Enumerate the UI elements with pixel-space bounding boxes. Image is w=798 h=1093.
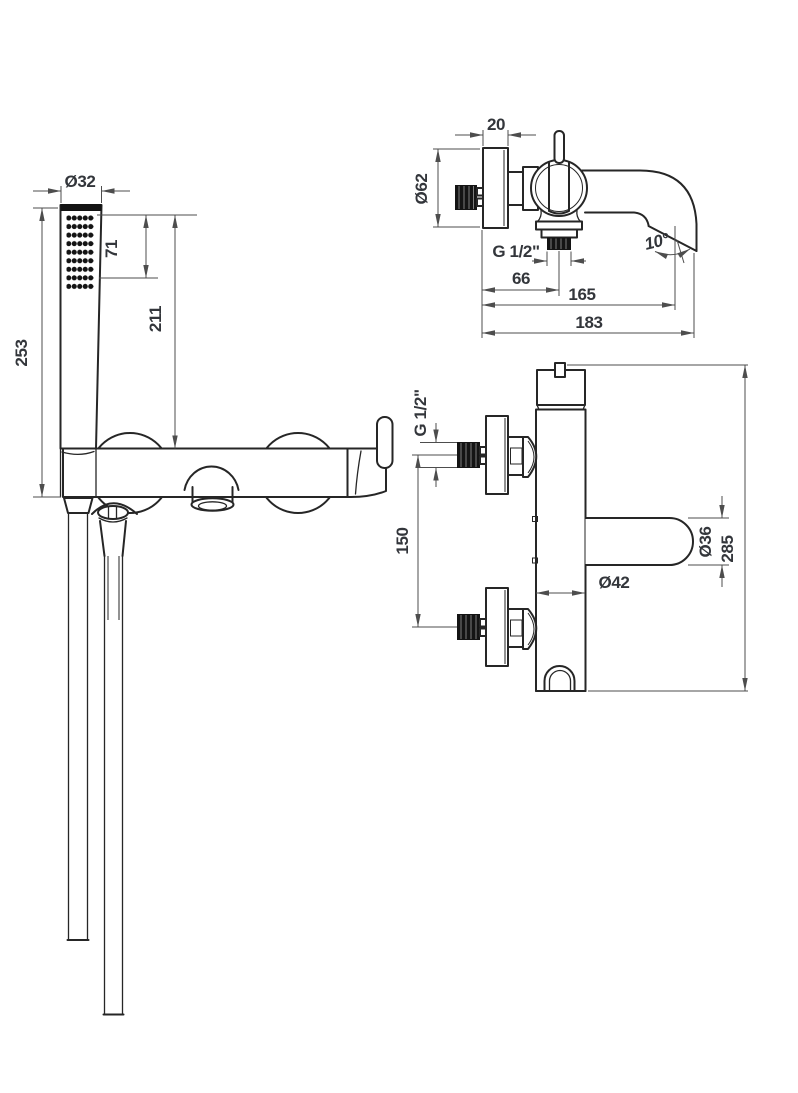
union-thread-knob-upper — [457, 442, 480, 468]
dim-head-diameter: Ø32 — [33, 172, 130, 203]
svg-text:G 1/2": G 1/2" — [492, 242, 539, 261]
spout-outlet-rim — [192, 498, 234, 510]
mixer-hose — [105, 556, 123, 1014]
outlet-nut-upper — [536, 222, 582, 230]
dim-plate-depth: 20 — [455, 115, 536, 146]
svg-text:71: 71 — [102, 240, 121, 258]
view-hand-shower-front: Ø32 71 211 253 — [12, 172, 393, 1015]
svg-text:253: 253 — [12, 339, 31, 366]
dim-head-to-body: 211 — [146, 215, 175, 449]
union-tab-top — [477, 188, 483, 196]
svg-text:20: 20 — [487, 115, 505, 134]
svg-text:165: 165 — [568, 285, 595, 304]
handle-skirt-curve — [356, 451, 362, 494]
union-tab-bottom — [477, 199, 483, 207]
svg-text:10°: 10° — [642, 229, 671, 254]
mixer-body-front — [63, 449, 348, 498]
lever-stick-side — [555, 131, 565, 163]
technical-drawing-page: Ø32 71 211 253 — [0, 0, 798, 1093]
dim-connection-spacing: 150 — [393, 455, 457, 627]
lever-handle-front — [377, 417, 393, 468]
svg-text:Ø62: Ø62 — [412, 174, 431, 205]
hand-shower-cap — [61, 204, 102, 211]
svg-text:G 1/2": G 1/2" — [411, 389, 430, 436]
svg-text:183: 183 — [575, 313, 602, 332]
dim-spray-length: 71 — [97, 215, 197, 278]
spout-outer-curve — [582, 171, 697, 252]
spray-face-dots — [67, 215, 95, 292]
svg-text:Ø42: Ø42 — [599, 573, 630, 592]
drawing-canvas: Ø32 71 211 253 — [0, 0, 798, 1093]
hose-union-nut — [98, 506, 128, 519]
union-thread-knob-lower — [457, 614, 480, 640]
spout-back-view — [586, 518, 694, 565]
mixer-hose-inner-lines — [108, 556, 119, 620]
svg-text:150: 150 — [393, 527, 412, 554]
svg-text:Ø32: Ø32 — [65, 172, 96, 191]
view-mixer-back: G 1/2" 150 Ø36 Ø42 285 — [393, 363, 748, 691]
wall-union-lower — [457, 588, 536, 666]
dim-outlet-thread: G 1/2" — [492, 242, 586, 266]
svg-text:Ø36: Ø36 — [696, 527, 715, 558]
valve-body-side — [531, 160, 587, 216]
spout-inner-curve — [585, 213, 649, 226]
shower-hose — [69, 513, 88, 940]
union-body-side — [508, 172, 523, 205]
outlet-nut-lower — [542, 230, 578, 238]
hose-cone — [100, 521, 126, 556]
shower-hose-nut — [64, 498, 93, 513]
mixer-column-back — [536, 410, 586, 692]
wall-union-upper — [457, 416, 536, 494]
svg-text:66: 66 — [512, 269, 530, 288]
svg-text:211: 211 — [146, 306, 165, 332]
dim-spout-angle: 10° — [642, 229, 690, 263]
dim-total-length: 253 — [12, 208, 61, 497]
handle-endcap-edge — [348, 468, 387, 497]
view-mixer-side: 20 Ø62 G 1/2" 66 165 183 — [412, 115, 697, 338]
svg-text:285: 285 — [718, 535, 737, 562]
lever-tip-notch — [555, 363, 565, 377]
